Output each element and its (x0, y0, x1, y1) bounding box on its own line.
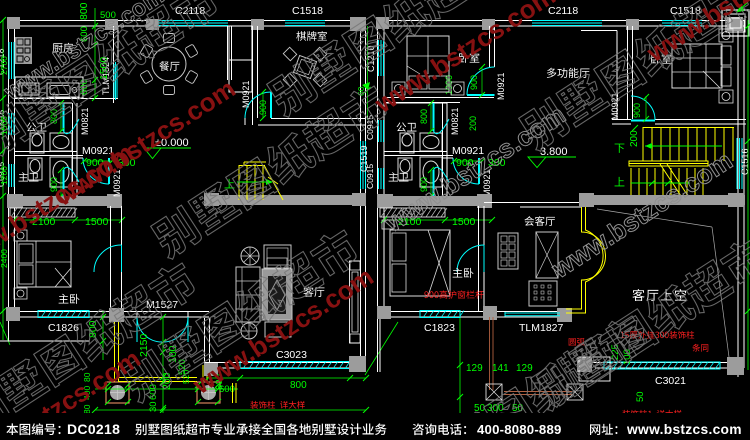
svg-text:M0921: M0921 (496, 72, 506, 100)
svg-text:C3023: C3023 (276, 349, 307, 361)
svg-text:800: 800 (290, 380, 307, 391)
svg-text:www.bstzcs.com: www.bstzcs.com (626, 422, 742, 437)
svg-text:C1518: C1518 (292, 5, 323, 17)
svg-text:1500: 1500 (85, 216, 109, 228)
svg-text:2700: 2700 (0, 56, 9, 75)
svg-text:TLM1827: TLM1827 (519, 322, 564, 334)
svg-text:3.800: 3.800 (540, 146, 568, 158)
svg-text:C1826: C1826 (48, 322, 79, 334)
svg-text:DC0218: DC0218 (67, 421, 120, 437)
svg-text:400-8080-889: 400-8080-889 (477, 422, 562, 437)
svg-text:C0915: C0915 (365, 164, 375, 189)
svg-text:2400: 2400 (0, 249, 9, 268)
svg-text:C1823: C1823 (424, 322, 455, 334)
svg-text:900: 900 (632, 103, 642, 118)
svg-text:M0821: M0821 (450, 107, 460, 135)
svg-text:800: 800 (78, 2, 90, 20)
svg-text:C3021: C3021 (655, 375, 686, 387)
svg-text:1500: 1500 (452, 216, 476, 228)
svg-text:141: 141 (492, 363, 509, 374)
svg-text:200: 200 (629, 130, 640, 147)
svg-text:900: 900 (469, 75, 479, 90)
svg-text:200: 200 (468, 116, 478, 131)
svg-text:M0921: M0921 (241, 80, 251, 108)
svg-text:M0821: M0821 (80, 107, 90, 135)
svg-text:800: 800 (419, 109, 429, 124)
svg-text:30: 30 (148, 401, 159, 412)
svg-text:1200: 1200 (0, 166, 9, 185)
svg-text:129: 129 (516, 363, 533, 374)
svg-text:50: 50 (635, 391, 646, 402)
svg-text:129: 129 (466, 363, 483, 374)
svg-text:C1516: C1516 (740, 148, 750, 175)
